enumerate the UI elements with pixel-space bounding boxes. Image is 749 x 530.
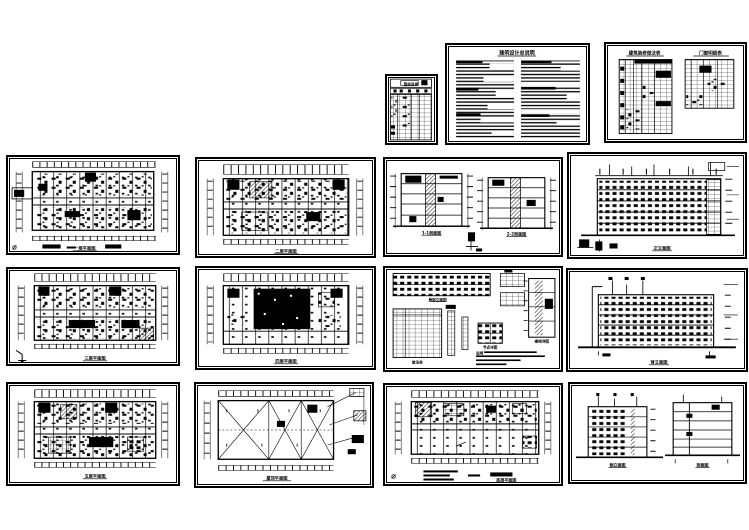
side-elevation-drawing: 侧立面图 剖面图 <box>570 384 745 482</box>
plan4-caption: 四层平面图 <box>275 358 296 365</box>
node-caption: 节点详图 <box>483 344 498 349</box>
drawing-index-table: 图纸目录 <box>387 76 436 143</box>
sheet-schedules[interactable]: 建筑装修做法表 门窗明细表 <box>604 42 747 143</box>
sheet-sections[interactable]: 1-1剖面图 2-2剖面图 <box>383 157 563 257</box>
side-left-caption: 侧立面图 <box>608 461 625 467</box>
notes-text-column-right <box>521 61 580 138</box>
details-drawing: 局部立面图 做法表 节点详图 <box>385 268 561 370</box>
schedules-drawing: 建筑装修做法表 门窗明细表 <box>606 44 745 141</box>
section-right-caption: 2-2剖面图 <box>507 230 526 236</box>
notes-title: 建筑设计总说明 <box>498 49 534 56</box>
sheet-general-notes[interactable]: 建筑设计总说明 <box>445 43 590 145</box>
sheet-side-elevation[interactable]: 侧立面图 剖面图 <box>568 382 747 484</box>
table-caption: 做法表 <box>411 360 423 365</box>
section-left-caption: 1-1剖面图 <box>422 229 441 235</box>
sheet-roof-plan[interactable]: 屋顶平面图 <box>194 382 374 488</box>
sheet-details[interactable]: 局部立面图 做法表 节点详图 <box>383 266 563 372</box>
drawing-collage: 图纸目录 建筑设计总说明 <box>0 0 749 530</box>
svg-text:⌀: ⌀ <box>391 471 396 481</box>
floor-plan-3-drawing: 三层平面图 <box>8 269 178 364</box>
notes-text-column-left <box>456 61 514 138</box>
sheet-floor-plan-2[interactable]: 二层平面图 <box>195 157 376 258</box>
simple-section: 剖面图 <box>665 395 740 468</box>
front-elevation-caption: 正立面图 <box>654 245 671 252</box>
ground-plan-caption: 底层平面图 <box>495 477 516 483</box>
level-marks <box>727 167 739 234</box>
facade <box>581 163 735 236</box>
finish-schedule-table <box>619 60 672 134</box>
floor-plan-5-drawing: 五层平面图 <box>8 384 178 484</box>
sheet-front-elevation[interactable]: 正立面图 <box>567 152 747 259</box>
roof-caption: 屋顶平面图 <box>266 475 287 482</box>
rear-elevation-drawing: 背立面图 <box>568 270 746 370</box>
sheet-rear-elevation[interactable]: 背立面图 <box>566 268 748 372</box>
sheet-floor-plan-5[interactable]: 五层平面图 <box>6 382 180 486</box>
floor-plan-4-drawing: 四层平面图 <box>197 268 374 368</box>
sheet-ground-floor-plan[interactable]: ⌀ 底层平面图 <box>383 383 563 486</box>
strip-caption: 局部立面图 <box>428 297 447 302</box>
section-detail-callout <box>466 232 482 251</box>
misc-details <box>577 239 617 251</box>
ground-floor-plan-drawing: ⌀ 底层平面图 <box>385 385 561 484</box>
schedule-grid: 做法表 <box>393 309 442 365</box>
sheet-floor-plan-3[interactable]: 三层平面图 <box>6 267 180 366</box>
sheet-floor-plan-4[interactable]: 四层平面图 <box>195 266 376 370</box>
partial-elevation-strip: 局部立面图 <box>393 273 490 301</box>
level-marks <box>724 285 738 346</box>
stair-section-detail: 楼梯详图 <box>526 279 555 344</box>
north-indicator-icon: ⌀ <box>12 242 17 252</box>
floor-plan-1-drawing: ⌀ 一层平面图 <box>8 157 178 253</box>
rear-elevation-caption: 背立面图 <box>651 358 668 365</box>
detail-notes: 说明 <box>476 350 545 365</box>
sheet-drawing-index[interactable]: 图纸目录 <box>385 74 438 145</box>
door-window-schedule-title: 门窗明细表 <box>699 49 722 56</box>
general-notes-drawing: 建筑设计总说明 <box>447 45 588 143</box>
front-elevation-drawing: 正立面图 <box>569 154 745 257</box>
window-details <box>500 269 524 305</box>
side-right-caption: 剖面图 <box>696 461 708 467</box>
plan5-caption: 五层平面图 <box>84 473 105 480</box>
plan1-caption: 一层平面图 <box>74 245 95 252</box>
finish-schedule-title: 建筑装修做法表 <box>628 49 661 56</box>
door-window-schedule-table <box>685 60 734 109</box>
north-indicator-icon: ⌀ <box>391 471 396 481</box>
facade <box>578 279 736 359</box>
roof-plan-drawing: 屋顶平面图 <box>196 384 372 486</box>
plan3-caption: 三层平面图 <box>84 355 105 362</box>
entry-arrow-icon <box>16 350 26 363</box>
plan2-caption: 二层平面图 <box>275 248 296 255</box>
notes-label: 说明 <box>476 350 484 355</box>
sheet-floor-plan-1[interactable]: ⌀ 一层平面图 <box>6 155 180 255</box>
node-detail: 节点详图 <box>478 323 502 349</box>
svg-text:⌀: ⌀ <box>12 242 17 252</box>
index-title: 图纸目录 <box>404 81 419 86</box>
stair-caption: 楼梯详图 <box>535 338 550 343</box>
floor-plan-2-drawing: 二层平面图 <box>197 159 374 256</box>
sections-drawing: 1-1剖面图 2-2剖面图 <box>385 159 561 255</box>
hatched-hall <box>254 289 311 329</box>
section-1-1: 1-1剖面图 <box>393 174 470 236</box>
section-2-2: 2-2剖面图 <box>480 178 553 237</box>
side-elevation: 侧立面图 <box>576 395 663 468</box>
ladder-details <box>446 305 468 356</box>
